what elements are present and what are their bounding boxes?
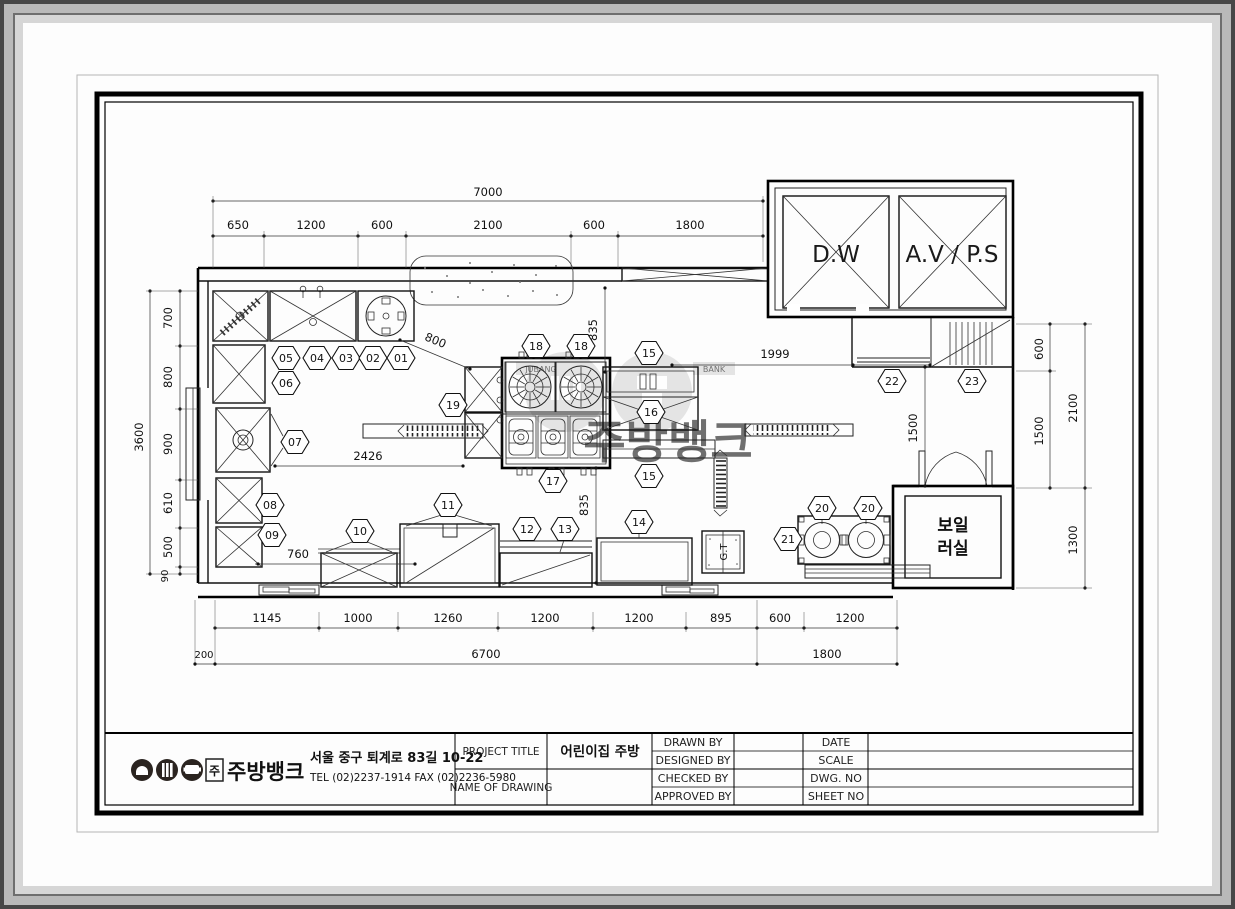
- double-door: [893, 451, 1013, 486]
- floor-plan-svg: JUBANG BANK 주방뱅크 D.W A.V / P.S: [0, 0, 1235, 909]
- project-title-value: 어린이집 주방: [560, 743, 640, 760]
- dim-inner-1500: 1500: [906, 413, 920, 442]
- svg-text:18: 18: [574, 340, 588, 353]
- dim-bottom2-1: 200: [194, 650, 213, 661]
- dim-inner-2426: 2426: [353, 449, 382, 463]
- equipment-tag: 10: [346, 520, 374, 543]
- approved-by-label: APPROVED BY: [654, 790, 731, 803]
- dim-top-2: 1200: [296, 218, 325, 232]
- svg-text:20: 20: [861, 502, 875, 515]
- equipment-tag: 17: [539, 470, 567, 493]
- dim-top-5: 600: [583, 218, 605, 232]
- tall-rack: [213, 345, 265, 403]
- dim-bottom-3: 1260: [433, 611, 462, 625]
- company-name: 주방뱅크: [227, 760, 304, 784]
- dwg-no-label: DWG. NO: [810, 772, 862, 785]
- svg-text:10: 10: [353, 525, 367, 538]
- sink-unit: [270, 286, 356, 341]
- dim-bottom-8: 1200: [835, 611, 864, 625]
- equipment-tag: 11: [434, 494, 462, 517]
- svg-text:23: 23: [965, 375, 979, 388]
- tables-19: [465, 367, 502, 458]
- dim-left-5: 500: [161, 536, 175, 558]
- svg-text:03: 03: [339, 352, 353, 365]
- equipment-tag: 23: [958, 370, 986, 393]
- svg-text:08: 08: [263, 499, 277, 512]
- dim-bottom-4: 1200: [530, 611, 559, 625]
- dim-right-1: 600: [1032, 338, 1046, 360]
- dim-left-1: 700: [161, 307, 175, 329]
- svg-text:17: 17: [546, 475, 560, 488]
- project-title-label: PROJECT TITLE: [462, 746, 539, 758]
- stairs: [931, 320, 1010, 367]
- cabinet-11: [400, 513, 499, 587]
- dim-bottom-6: 895: [710, 611, 732, 625]
- equipment-tag: 06: [272, 372, 300, 395]
- svg-text:14: 14: [632, 516, 646, 529]
- dim-inner-835b: 835: [577, 494, 591, 516]
- prep-sink-07: [216, 408, 283, 472]
- equipment-tag: 01: [387, 347, 415, 370]
- equipment-tag: 12: [513, 518, 541, 541]
- cabinet-14: [597, 530, 692, 585]
- svg-text:16: 16: [644, 406, 658, 419]
- dim-inner-760: 760: [287, 547, 309, 561]
- date-label: DATE: [822, 736, 851, 749]
- cad-drawing-page: { "watermark": { "jubang": "JUBANG", "ba…: [0, 0, 1235, 909]
- dim-left-4: 610: [161, 492, 175, 514]
- table-10: [318, 539, 400, 587]
- boiler-room-label-2: 러실: [937, 539, 968, 559]
- equipment-tag: 07: [281, 431, 309, 454]
- svg-text:13: 13: [558, 523, 572, 536]
- svg-text:11: 11: [441, 499, 455, 512]
- equipment-tag: 19: [439, 394, 467, 417]
- equipment-tag: 03: [332, 347, 360, 370]
- equipment-tag: 22: [878, 370, 906, 393]
- shaft-rooms: D.W A.V / P.S: [768, 181, 1013, 317]
- dim-left-3: 900: [161, 433, 175, 455]
- dim-bottom-1: 1145: [252, 611, 281, 625]
- equipment-tag: 13: [551, 518, 579, 541]
- title-block: 주 주방뱅크 서울 중구 퇴계로 83길 10-22 TEL (02)2237-…: [105, 733, 1133, 805]
- svg-text:15: 15: [642, 470, 656, 483]
- svg-text:15: 15: [642, 347, 656, 360]
- svg-text:02: 02: [366, 352, 380, 365]
- equipment-tag: 08: [256, 494, 284, 517]
- svg-text:01: 01: [394, 352, 408, 365]
- company-logo: 주 주방뱅크 서울 중구 퇴계로 83길 10-22 TEL (02)2237-…: [131, 750, 516, 784]
- grease-trap-label: G.T: [719, 543, 730, 561]
- svg-text:19: 19: [446, 399, 460, 412]
- corner-dish-table: [213, 291, 268, 341]
- watermark-bank-text: BANK: [703, 365, 726, 374]
- dim-bottom-7: 600: [769, 611, 791, 625]
- dim-right-3: 2100: [1066, 393, 1080, 422]
- equipment-tag: 05: [272, 347, 300, 370]
- dim-inner-800: 800: [423, 330, 449, 351]
- svg-text:20: 20: [815, 502, 829, 515]
- dim-top-total: 7000: [473, 185, 502, 199]
- checked-by-label: CHECKED BY: [658, 772, 729, 785]
- twin-kettles: [796, 516, 930, 578]
- equipment-tag: 18: [522, 335, 550, 358]
- equipment-tag: 14: [625, 511, 653, 534]
- svg-text:06: 06: [279, 377, 293, 390]
- dim-top-3: 600: [371, 218, 393, 232]
- svg-text:12: 12: [520, 523, 534, 536]
- dim-left-6: 90: [160, 570, 171, 583]
- jubang-bank-watermark: JUBANG BANK 주방뱅크: [516, 352, 753, 469]
- svg-text:05: 05: [279, 352, 293, 365]
- svg-text:21: 21: [781, 533, 795, 546]
- svg-text:07: 07: [288, 436, 302, 449]
- designed-by-label: DESIGNED BY: [656, 754, 731, 767]
- dim-inner-1999: 1999: [760, 347, 789, 361]
- dim-top-6: 1800: [675, 218, 704, 232]
- svg-text:22: 22: [885, 375, 899, 388]
- dim-right-4: 1300: [1066, 525, 1080, 554]
- dim-bottom2-3: 1800: [812, 647, 841, 661]
- equipment-tag: 04: [303, 347, 331, 370]
- drawn-by-label: DRAWN BY: [664, 736, 723, 749]
- dim-left-2: 800: [161, 366, 175, 388]
- sheet-no-label: SHEET NO: [808, 790, 865, 803]
- scale-label: SCALE: [818, 754, 853, 767]
- company-address: 서울 중구 퇴계로 83길 10-22: [310, 750, 483, 766]
- equipment-tag: 02: [359, 347, 387, 370]
- dim-bottom-5: 1200: [624, 611, 653, 625]
- svg-text:04: 04: [310, 352, 324, 365]
- right-zone-walls: 보일 러실: [852, 317, 1013, 590]
- dim-bottom2-2: 6700: [471, 647, 500, 661]
- grease-trap: G.T: [702, 531, 744, 573]
- shelf-12-table-13: [500, 537, 592, 587]
- dim-bottom-2: 1000: [343, 611, 372, 625]
- corp-mark: 주: [209, 764, 220, 778]
- dim-right-2: 1500: [1032, 416, 1046, 445]
- equipment: G.T: [213, 286, 930, 587]
- svg-text:18: 18: [529, 340, 543, 353]
- dim-top-1: 650: [227, 218, 249, 232]
- dim-top-4: 2100: [473, 218, 502, 232]
- svg-text:09: 09: [265, 529, 279, 542]
- dim-left-total: 3600: [132, 422, 146, 451]
- room-label-dw: D.W: [812, 242, 860, 268]
- round-machine: [358, 291, 414, 341]
- boiler-room-label-1: 보일: [937, 516, 968, 536]
- room-label-avps: A.V / P.S: [906, 242, 999, 268]
- name-of-drawing-label: NAME OF DRAWING: [450, 782, 553, 794]
